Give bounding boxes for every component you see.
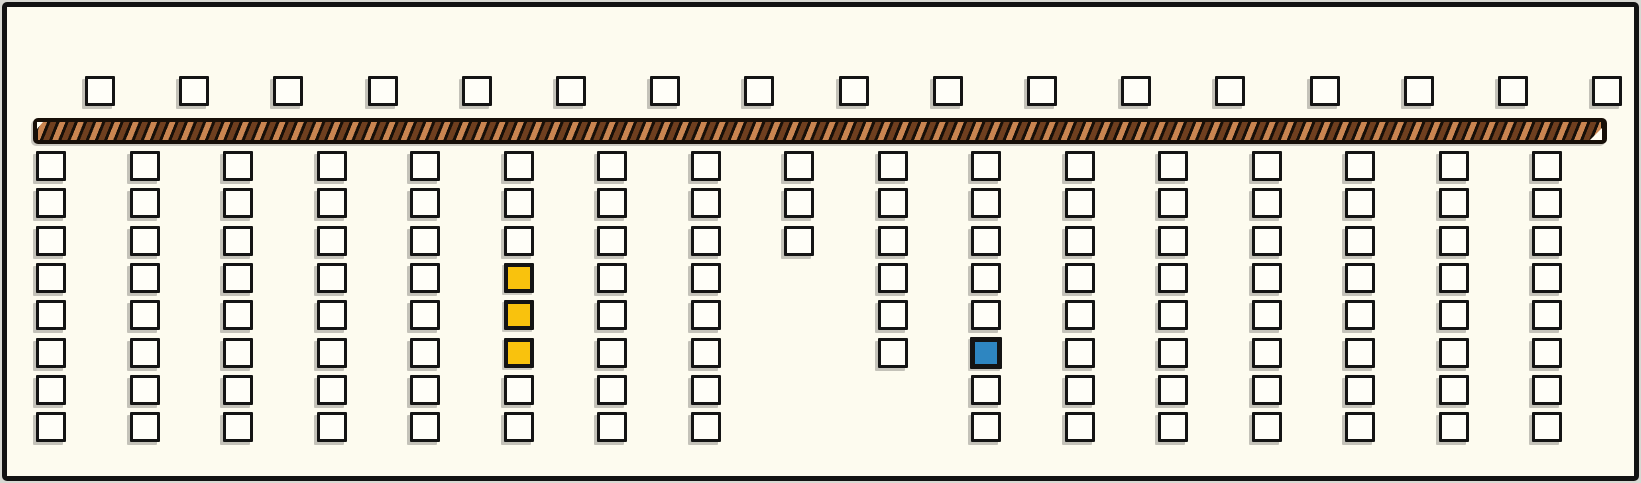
cell-c2-r1[interactable] <box>130 151 160 181</box>
cell-c7-r2[interactable] <box>597 188 627 218</box>
cell-c6-r5-yellow[interactable] <box>504 300 534 330</box>
cell-c11-r8[interactable] <box>971 412 1001 442</box>
cell-c2-r8[interactable] <box>130 412 160 442</box>
cell-c1-r4[interactable] <box>36 263 66 293</box>
cell-c2-r7[interactable] <box>130 375 160 405</box>
cell-c16-r7[interactable] <box>1439 375 1469 405</box>
cell-c8-r3[interactable] <box>691 226 721 256</box>
cell-c5-r4[interactable] <box>410 263 440 293</box>
cell-c11-r6-blue[interactable] <box>970 337 1002 369</box>
cell-c8-r5[interactable] <box>691 300 721 330</box>
cell-c12-r8[interactable] <box>1065 412 1095 442</box>
cell-c13-r2[interactable] <box>1158 188 1188 218</box>
cell-c10-r3[interactable] <box>878 226 908 256</box>
cell-c1-r1[interactable] <box>36 151 66 181</box>
cell-c8-r1[interactable] <box>691 151 721 181</box>
cell-c12-r3[interactable] <box>1065 226 1095 256</box>
cell-c9-r1[interactable] <box>784 151 814 181</box>
cell-c11-r7[interactable] <box>971 375 1001 405</box>
cell-c14-r7[interactable] <box>1252 375 1282 405</box>
cell-c17-r8[interactable] <box>1532 412 1562 442</box>
cell-c1-r2[interactable] <box>36 188 66 218</box>
cell-c10-r2[interactable] <box>878 188 908 218</box>
cell-c16-r5[interactable] <box>1439 300 1469 330</box>
top-slot-17[interactable] <box>1592 76 1622 106</box>
cell-c6-r4-yellow[interactable] <box>504 263 534 293</box>
cell-c4-r4[interactable] <box>317 263 347 293</box>
cell-c17-r3[interactable] <box>1532 226 1562 256</box>
cell-c5-r1[interactable] <box>410 151 440 181</box>
cell-c2-r5[interactable] <box>130 300 160 330</box>
cell-c13-r1[interactable] <box>1158 151 1188 181</box>
top-slot-3[interactable] <box>273 76 303 106</box>
cell-c8-r7[interactable] <box>691 375 721 405</box>
cell-c6-r8[interactable] <box>504 412 534 442</box>
diagram-stage <box>0 0 1641 483</box>
cell-c3-r6[interactable] <box>223 338 253 368</box>
cell-c8-r6[interactable] <box>691 338 721 368</box>
cell-c16-r2[interactable] <box>1439 188 1469 218</box>
cell-c3-r7[interactable] <box>223 375 253 405</box>
cell-c3-r1[interactable] <box>223 151 253 181</box>
cell-c5-r2[interactable] <box>410 188 440 218</box>
top-slot-13[interactable] <box>1215 76 1245 106</box>
top-slot-4[interactable] <box>368 76 398 106</box>
cell-c17-r5[interactable] <box>1532 300 1562 330</box>
top-slot-2[interactable] <box>179 76 209 106</box>
top-slot-11[interactable] <box>1027 76 1057 106</box>
cell-c3-r8[interactable] <box>223 412 253 442</box>
cell-c3-r5[interactable] <box>223 300 253 330</box>
cell-c2-r2[interactable] <box>130 188 160 218</box>
cell-c4-r3[interactable] <box>317 226 347 256</box>
cell-c17-r2[interactable] <box>1532 188 1562 218</box>
cell-c11-r1[interactable] <box>971 151 1001 181</box>
cell-c5-r5[interactable] <box>410 300 440 330</box>
top-slot-16[interactable] <box>1498 76 1528 106</box>
top-slot-9[interactable] <box>839 76 869 106</box>
cell-c9-r2[interactable] <box>784 188 814 218</box>
cell-c16-r6[interactable] <box>1439 338 1469 368</box>
cell-c8-r2[interactable] <box>691 188 721 218</box>
cell-c7-r1[interactable] <box>597 151 627 181</box>
cell-c7-r6[interactable] <box>597 338 627 368</box>
cell-c15-r5[interactable] <box>1345 300 1375 330</box>
cell-c17-r6[interactable] <box>1532 338 1562 368</box>
cell-c5-r3[interactable] <box>410 226 440 256</box>
cell-c2-r4[interactable] <box>130 263 160 293</box>
cell-c2-r3[interactable] <box>130 226 160 256</box>
cell-c6-r6-yellow[interactable] <box>504 338 534 368</box>
cell-c1-r6[interactable] <box>36 338 66 368</box>
track-hatch-stripes <box>38 122 1601 140</box>
cell-c10-r4[interactable] <box>878 263 908 293</box>
cell-c16-r8[interactable] <box>1439 412 1469 442</box>
cell-c15-r6[interactable] <box>1345 338 1375 368</box>
cell-c17-r7[interactable] <box>1532 375 1562 405</box>
cell-c11-r2[interactable] <box>971 188 1001 218</box>
cell-c17-r4[interactable] <box>1532 263 1562 293</box>
cell-c14-r4[interactable] <box>1252 263 1282 293</box>
cell-c14-r6[interactable] <box>1252 338 1282 368</box>
cell-c14-r5[interactable] <box>1252 300 1282 330</box>
top-slot-5[interactable] <box>462 76 492 106</box>
cell-c1-r5[interactable] <box>36 300 66 330</box>
cell-c12-r5[interactable] <box>1065 300 1095 330</box>
cell-c15-r1[interactable] <box>1345 151 1375 181</box>
cell-c15-r3[interactable] <box>1345 226 1375 256</box>
cell-c11-r5[interactable] <box>971 300 1001 330</box>
cell-c13-r3[interactable] <box>1158 226 1188 256</box>
cell-c5-r6[interactable] <box>410 338 440 368</box>
cell-c6-r7[interactable] <box>504 375 534 405</box>
cell-c8-r4[interactable] <box>691 263 721 293</box>
cell-c14-r3[interactable] <box>1252 226 1282 256</box>
cell-c6-r3[interactable] <box>504 226 534 256</box>
cell-c13-r7[interactable] <box>1158 375 1188 405</box>
cell-c15-r2[interactable] <box>1345 188 1375 218</box>
cell-c11-r3[interactable] <box>971 226 1001 256</box>
hatched-track-bar <box>33 118 1607 144</box>
top-slot-15[interactable] <box>1404 76 1434 106</box>
cell-c5-r7[interactable] <box>410 375 440 405</box>
top-slot-8[interactable] <box>744 76 774 106</box>
cell-c4-r6[interactable] <box>317 338 347 368</box>
cell-c4-r1[interactable] <box>317 151 347 181</box>
cell-c14-r2[interactable] <box>1252 188 1282 218</box>
cell-c13-r6[interactable] <box>1158 338 1188 368</box>
top-slot-14[interactable] <box>1310 76 1340 106</box>
cell-c7-r4[interactable] <box>597 263 627 293</box>
top-slot-6[interactable] <box>556 76 586 106</box>
cell-c13-r4[interactable] <box>1158 263 1188 293</box>
cell-c4-r8[interactable] <box>317 412 347 442</box>
cell-c11-r4[interactable] <box>971 263 1001 293</box>
cell-c4-r2[interactable] <box>317 188 347 218</box>
cell-c16-r4[interactable] <box>1439 263 1469 293</box>
cell-c4-r5[interactable] <box>317 300 347 330</box>
cell-c12-r4[interactable] <box>1065 263 1095 293</box>
cell-c10-r1[interactable] <box>878 151 908 181</box>
cell-c17-r1[interactable] <box>1532 151 1562 181</box>
cell-c3-r3[interactable] <box>223 226 253 256</box>
cell-c10-r5[interactable] <box>878 300 908 330</box>
cell-c5-r8[interactable] <box>410 412 440 442</box>
cell-c15-r4[interactable] <box>1345 263 1375 293</box>
cell-c9-r3[interactable] <box>784 226 814 256</box>
cell-c13-r5[interactable] <box>1158 300 1188 330</box>
cell-c7-r3[interactable] <box>597 226 627 256</box>
top-slot-12[interactable] <box>1121 76 1151 106</box>
cell-c7-r8[interactable] <box>597 412 627 442</box>
cell-c1-r3[interactable] <box>36 226 66 256</box>
cell-c3-r4[interactable] <box>223 263 253 293</box>
cell-c16-r1[interactable] <box>1439 151 1469 181</box>
cell-c12-r2[interactable] <box>1065 188 1095 218</box>
cell-c3-r2[interactable] <box>223 188 253 218</box>
cell-c1-r7[interactable] <box>36 375 66 405</box>
cell-c12-r6[interactable] <box>1065 338 1095 368</box>
cell-c13-r8[interactable] <box>1158 412 1188 442</box>
cell-c6-r1[interactable] <box>504 151 534 181</box>
cell-c8-r8[interactable] <box>691 412 721 442</box>
cell-c7-r5[interactable] <box>597 300 627 330</box>
top-slot-7[interactable] <box>650 76 680 106</box>
cell-c4-r7[interactable] <box>317 375 347 405</box>
cell-c15-r7[interactable] <box>1345 375 1375 405</box>
cell-c14-r8[interactable] <box>1252 412 1282 442</box>
cell-c10-r6[interactable] <box>878 338 908 368</box>
cell-c16-r3[interactable] <box>1439 226 1469 256</box>
top-slot-1[interactable] <box>85 76 115 106</box>
cell-c12-r1[interactable] <box>1065 151 1095 181</box>
cell-c2-r6[interactable] <box>130 338 160 368</box>
top-slot-10[interactable] <box>933 76 963 106</box>
cell-c7-r7[interactable] <box>597 375 627 405</box>
cell-c15-r8[interactable] <box>1345 412 1375 442</box>
cell-c1-r8[interactable] <box>36 412 66 442</box>
cell-c12-r7[interactable] <box>1065 375 1095 405</box>
cell-c14-r1[interactable] <box>1252 151 1282 181</box>
cell-c6-r2[interactable] <box>504 188 534 218</box>
